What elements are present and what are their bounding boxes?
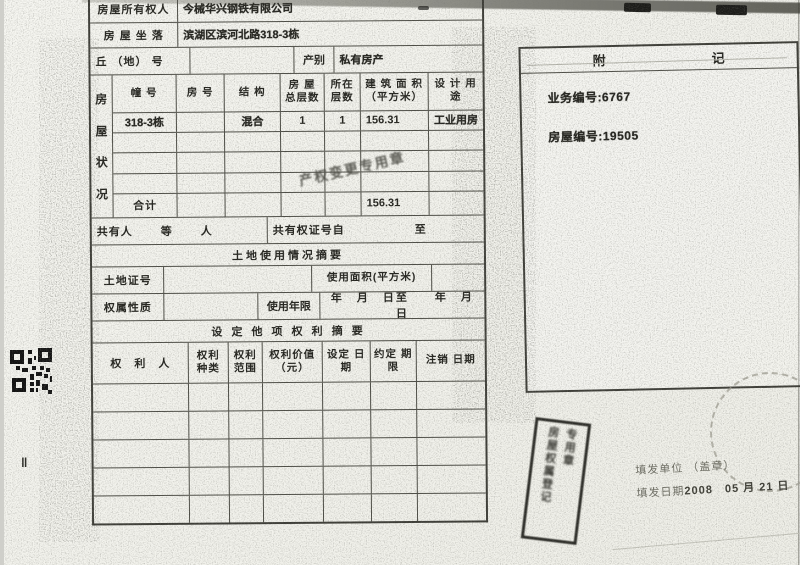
- land-section-title: 土地使用情况摘要: [92, 242, 484, 266]
- qr-code: [10, 348, 52, 394]
- land-term-value: 年 月 日至 年 月 日: [320, 291, 484, 318]
- coowner-ren: 人: [201, 223, 213, 239]
- rights-header-row: 权 利 人 权利 种类 权利 范围 权利价值 （元） 设定 日期 约定 期限 注…: [93, 340, 485, 384]
- col-right-holder: 权 利 人: [93, 343, 189, 384]
- col-floor: 所在 层数: [325, 73, 361, 110]
- side-char: 况: [96, 185, 108, 202]
- rights-empty-row: [93, 437, 485, 468]
- coowner-label: 共有人: [97, 223, 133, 239]
- plot-number-row: 丘 （地） 号 产别 私有房产: [90, 45, 482, 75]
- col-area: 建 筑 面 积 （平方米）: [361, 73, 429, 110]
- rights-empty-row: [94, 493, 486, 523]
- land-cert-value: [164, 266, 312, 293]
- col-right-scope: 权利 范围: [229, 342, 263, 382]
- issue-unit-line: 填发单位 （盖章）: [635, 454, 789, 478]
- col-total-floors: 房 屋 总层数: [281, 74, 325, 111]
- col-building-no: 幢 号: [113, 75, 177, 112]
- coowner-deng: 等: [161, 223, 173, 239]
- coowner-zhi: 至: [415, 221, 427, 237]
- col-agreed-term: 约定 期限: [371, 341, 417, 381]
- category-label: 产别: [294, 47, 334, 73]
- paper-edge-line: [612, 531, 800, 550]
- location-row: 房 屋 坐 落 滨湖区滨河北路318-3栋: [90, 20, 482, 48]
- annex-header-ji: 记: [711, 47, 724, 66]
- total-area: 156.31: [361, 192, 429, 216]
- issue-block: 填发单位 （盖章） 填发日期2008 05 月 21 日: [635, 454, 790, 508]
- category-value: 私有房产: [334, 45, 482, 72]
- scanned-document-page: 房屋所有权人 今械华兴钢铁有限公司 房 屋 坐 落 滨湖区滨河北路318-3栋 …: [4, 0, 799, 565]
- land-section-title-row: 土地使用情况摘要: [92, 242, 484, 267]
- land-area-label: 使用面积(平方米): [312, 265, 432, 292]
- rights-section-title-row: 设 定 他 项 权 利 摘 要: [92, 318, 484, 343]
- cell-structure: 混合: [225, 112, 281, 132]
- col-cancel-date: 注销 日期: [417, 340, 485, 381]
- annex-body: 业务编号:6767 房屋编号:19505: [521, 68, 798, 146]
- registration-mark: ‖: [21, 455, 27, 470]
- rights-section-title: 设 定 他 项 权 利 摘 要: [92, 318, 484, 342]
- house-number: 房屋编号:19505: [548, 123, 798, 145]
- col-set-date: 设定 日期: [323, 341, 371, 381]
- issue-date-label: 填发日期: [636, 485, 685, 499]
- cell-floor: 1: [325, 111, 361, 131]
- scan-artifact: [624, 3, 651, 12]
- side-char: 状: [96, 154, 108, 171]
- cell-room-no: [177, 112, 225, 132]
- rights-empty-row: [93, 381, 485, 412]
- land-cert-row: 土地证号 使用面积(平方米): [92, 264, 484, 294]
- location-label: 房 屋 坐 落: [90, 23, 178, 48]
- annex-header-fu: 附: [592, 50, 605, 69]
- col-right-value: 权利价值 （元）: [263, 342, 323, 382]
- scan-artifact: [716, 5, 747, 16]
- cell-building-no: 318-3栋: [113, 113, 177, 133]
- cell-total-floors: 1: [281, 111, 325, 131]
- land-area-value: [432, 264, 484, 290]
- land-term-label: 使用年限: [258, 293, 320, 319]
- cell-area: 156.31: [361, 111, 429, 131]
- property-record-table: 房屋所有权人 今械华兴钢铁有限公司 房 屋 坐 落 滨湖区滨河北路318-3栋 …: [88, 0, 488, 526]
- col-right-type: 权利 种类: [189, 342, 229, 382]
- rectangular-seal: 房屋权属登记 专用章: [521, 417, 591, 545]
- land-nature-row: 权属性质 使用年限 年 月 日至 年 月 日: [92, 291, 484, 321]
- issue-unit-label: 填发单位: [635, 463, 684, 477]
- house-total-row: 合计 156.31: [113, 191, 483, 217]
- rights-empty-row: [94, 465, 486, 496]
- owner-value: 今械华兴钢铁有限公司: [178, 0, 482, 22]
- issue-date-line: 填发日期2008 05 月 21 日: [636, 477, 790, 501]
- coowner-cell: 共有人 等 人: [92, 217, 268, 244]
- annex-panel: 附 记 业务编号:6767 房屋编号:19505: [518, 41, 800, 393]
- business-number: 业务编号:6767: [547, 84, 797, 106]
- issue-date-value: 2008 05 月 21 日: [684, 480, 790, 497]
- col-structure: 结 构: [225, 74, 281, 111]
- coowner-row: 共有人 等 人 共有权证号自 至: [92, 215, 484, 245]
- total-label: 合计: [113, 194, 177, 218]
- side-char: 屋: [95, 122, 107, 139]
- coowner-cert-cell: 共有权证号自 至: [268, 215, 484, 243]
- issue-seal-hint: （盖章）: [687, 460, 736, 474]
- plot-number-value: [190, 47, 294, 74]
- side-char: 房: [95, 91, 107, 108]
- coowner-cert-label: 共有权证号自: [273, 222, 345, 239]
- land-nature-label: 权属性质: [92, 294, 164, 321]
- col-room-no: 房 号: [177, 74, 225, 111]
- cell-use: 工业用房: [429, 110, 483, 130]
- house-condition-side-label: 房 屋 状 况: [91, 75, 114, 217]
- house-data-row: 318-3栋 混合 1 1 156.31 工业用房: [113, 110, 483, 133]
- location-value: 滨湖区滨河北路318-3栋: [178, 20, 482, 46]
- col-use: 设 计 用 途: [429, 72, 483, 109]
- rights-empty-row: [93, 409, 485, 440]
- owner-label: 房屋所有权人: [90, 0, 178, 23]
- plot-number-label: 丘 （地） 号: [90, 48, 190, 75]
- house-header-row: 幢 号 房 号 结 构 房 屋 总层数 所在 层数 建 筑 面 积 （平方米） …: [113, 72, 483, 113]
- land-cert-label: 土地证号: [92, 267, 164, 294]
- land-nature-value: [164, 293, 258, 320]
